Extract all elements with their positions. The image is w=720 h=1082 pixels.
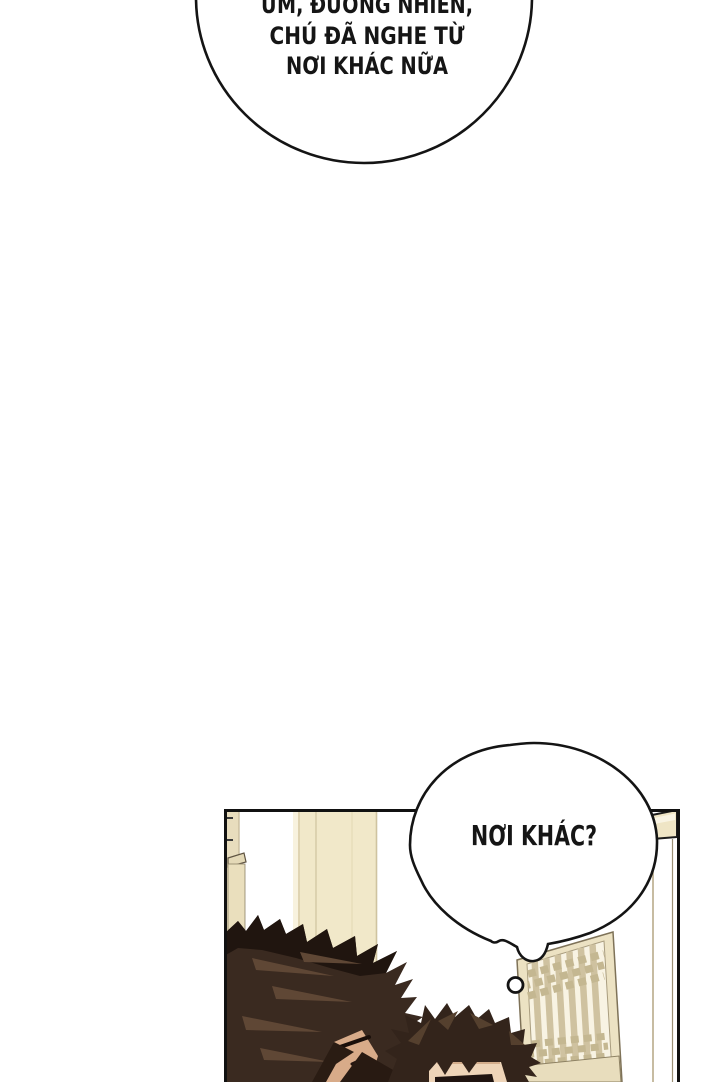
comic-page: NƠI KHÁC? ỪM, ĐƯƠNG NHIÊN, CHÚ ĐÃ NGHE T… <box>0 0 720 1082</box>
speech-text-top-line1: ỪM, ĐƯƠNG NHIÊN, <box>261 0 473 19</box>
comic-art: NƠI KHÁC? ỪM, ĐƯƠNG NHIÊN, CHÚ ĐÃ NGHE T… <box>0 0 720 1082</box>
speech-text-top-line2: CHÚ ĐÃ NGHE TỪ <box>270 20 465 50</box>
bubble-trail-dot <box>508 978 523 993</box>
speech-text-bottom: NƠI KHÁC? <box>471 818 597 852</box>
speech-text-top-line3: NƠI KHÁC NỮA <box>286 50 448 80</box>
speech-bubble-top: ỪM, ĐƯƠNG NHIÊN, CHÚ ĐÃ NGHE TỪ NƠI KHÁC… <box>196 0 532 163</box>
